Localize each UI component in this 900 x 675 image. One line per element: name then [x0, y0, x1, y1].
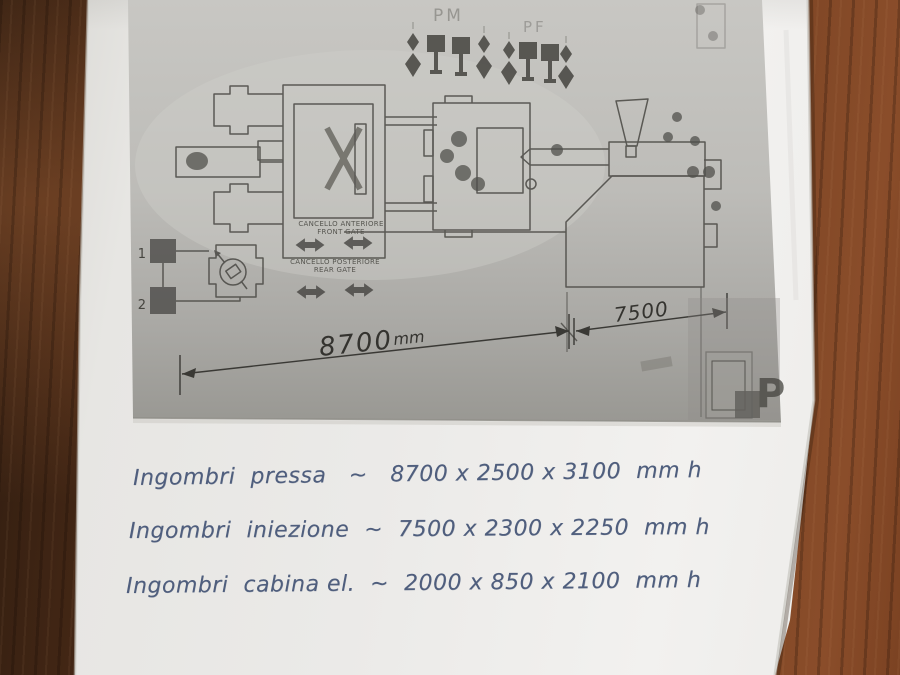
note-ingombri-iniezione: Ingombri iniezione ~ 7500 x 2300 x 2250 … [129, 515, 710, 544]
photo-scene: PM PF [0, 0, 900, 675]
